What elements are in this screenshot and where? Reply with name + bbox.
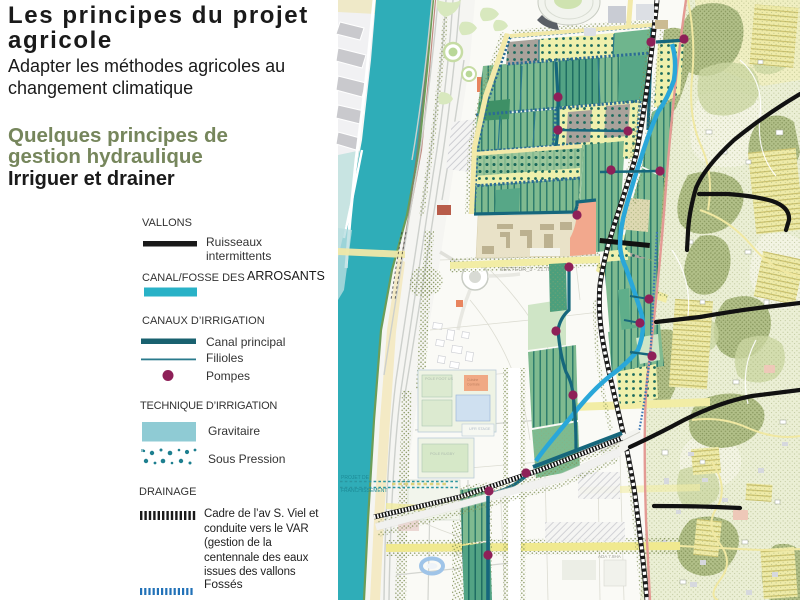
- svg-text:FRANCHISSEMENT: FRANCHISSEMENT: [341, 488, 387, 494]
- svg-text:POLE FOOT US: POLE FOOT US: [425, 377, 453, 381]
- svg-text:Centrale: Centrale: [467, 383, 480, 387]
- svg-text:POLE RUGBY: POLE RUGBY: [430, 452, 455, 456]
- svg-text:Cuisine: Cuisine: [467, 378, 478, 382]
- svg-text:PROJET DE: PROJET DE: [341, 475, 370, 481]
- svg-text:SECTEUR_3 - 21.7ha: SECTEUR_3 - 21.7ha: [500, 267, 555, 273]
- svg-text:UFR STAGE: UFR STAGE: [469, 427, 491, 431]
- svg-text:ADA 7.8HA: ADA 7.8HA: [598, 554, 621, 559]
